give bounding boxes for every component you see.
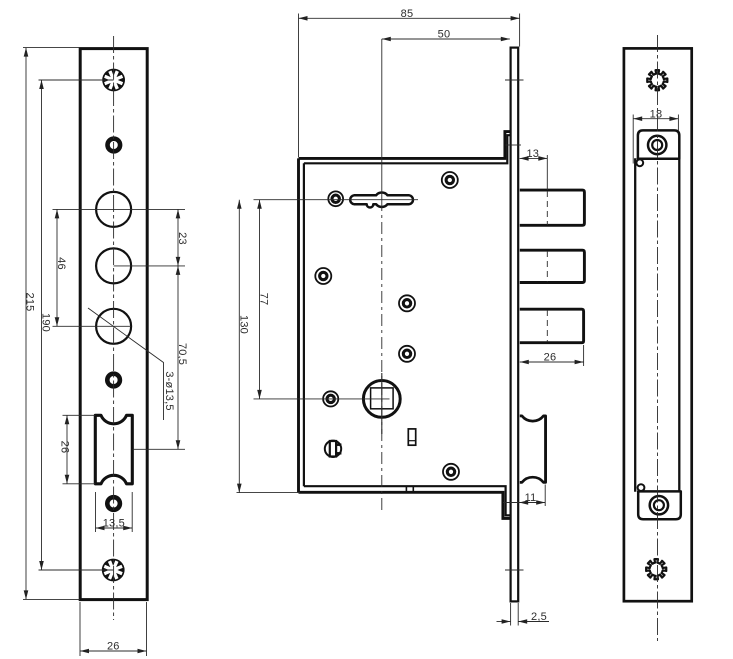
svg-text:50: 50 <box>438 29 451 41</box>
svg-text:26: 26 <box>544 352 557 364</box>
svg-text:3-ø13,5: 3-ø13,5 <box>163 371 175 410</box>
svg-text:13,5: 13,5 <box>103 518 125 530</box>
svg-text:85: 85 <box>401 8 414 20</box>
svg-text:26: 26 <box>59 441 71 454</box>
svg-text:46: 46 <box>55 257 67 270</box>
svg-text:190: 190 <box>39 313 51 332</box>
svg-text:70,5: 70,5 <box>176 343 188 365</box>
svg-text:26: 26 <box>107 641 120 653</box>
svg-text:77: 77 <box>258 293 270 306</box>
svg-text:130: 130 <box>237 315 249 334</box>
svg-text:13: 13 <box>526 148 539 160</box>
svg-text:23: 23 <box>176 232 188 245</box>
svg-text:2,5: 2,5 <box>531 611 547 623</box>
svg-text:18: 18 <box>650 108 663 120</box>
svg-text:215: 215 <box>24 293 36 312</box>
svg-text:11: 11 <box>525 492 537 504</box>
